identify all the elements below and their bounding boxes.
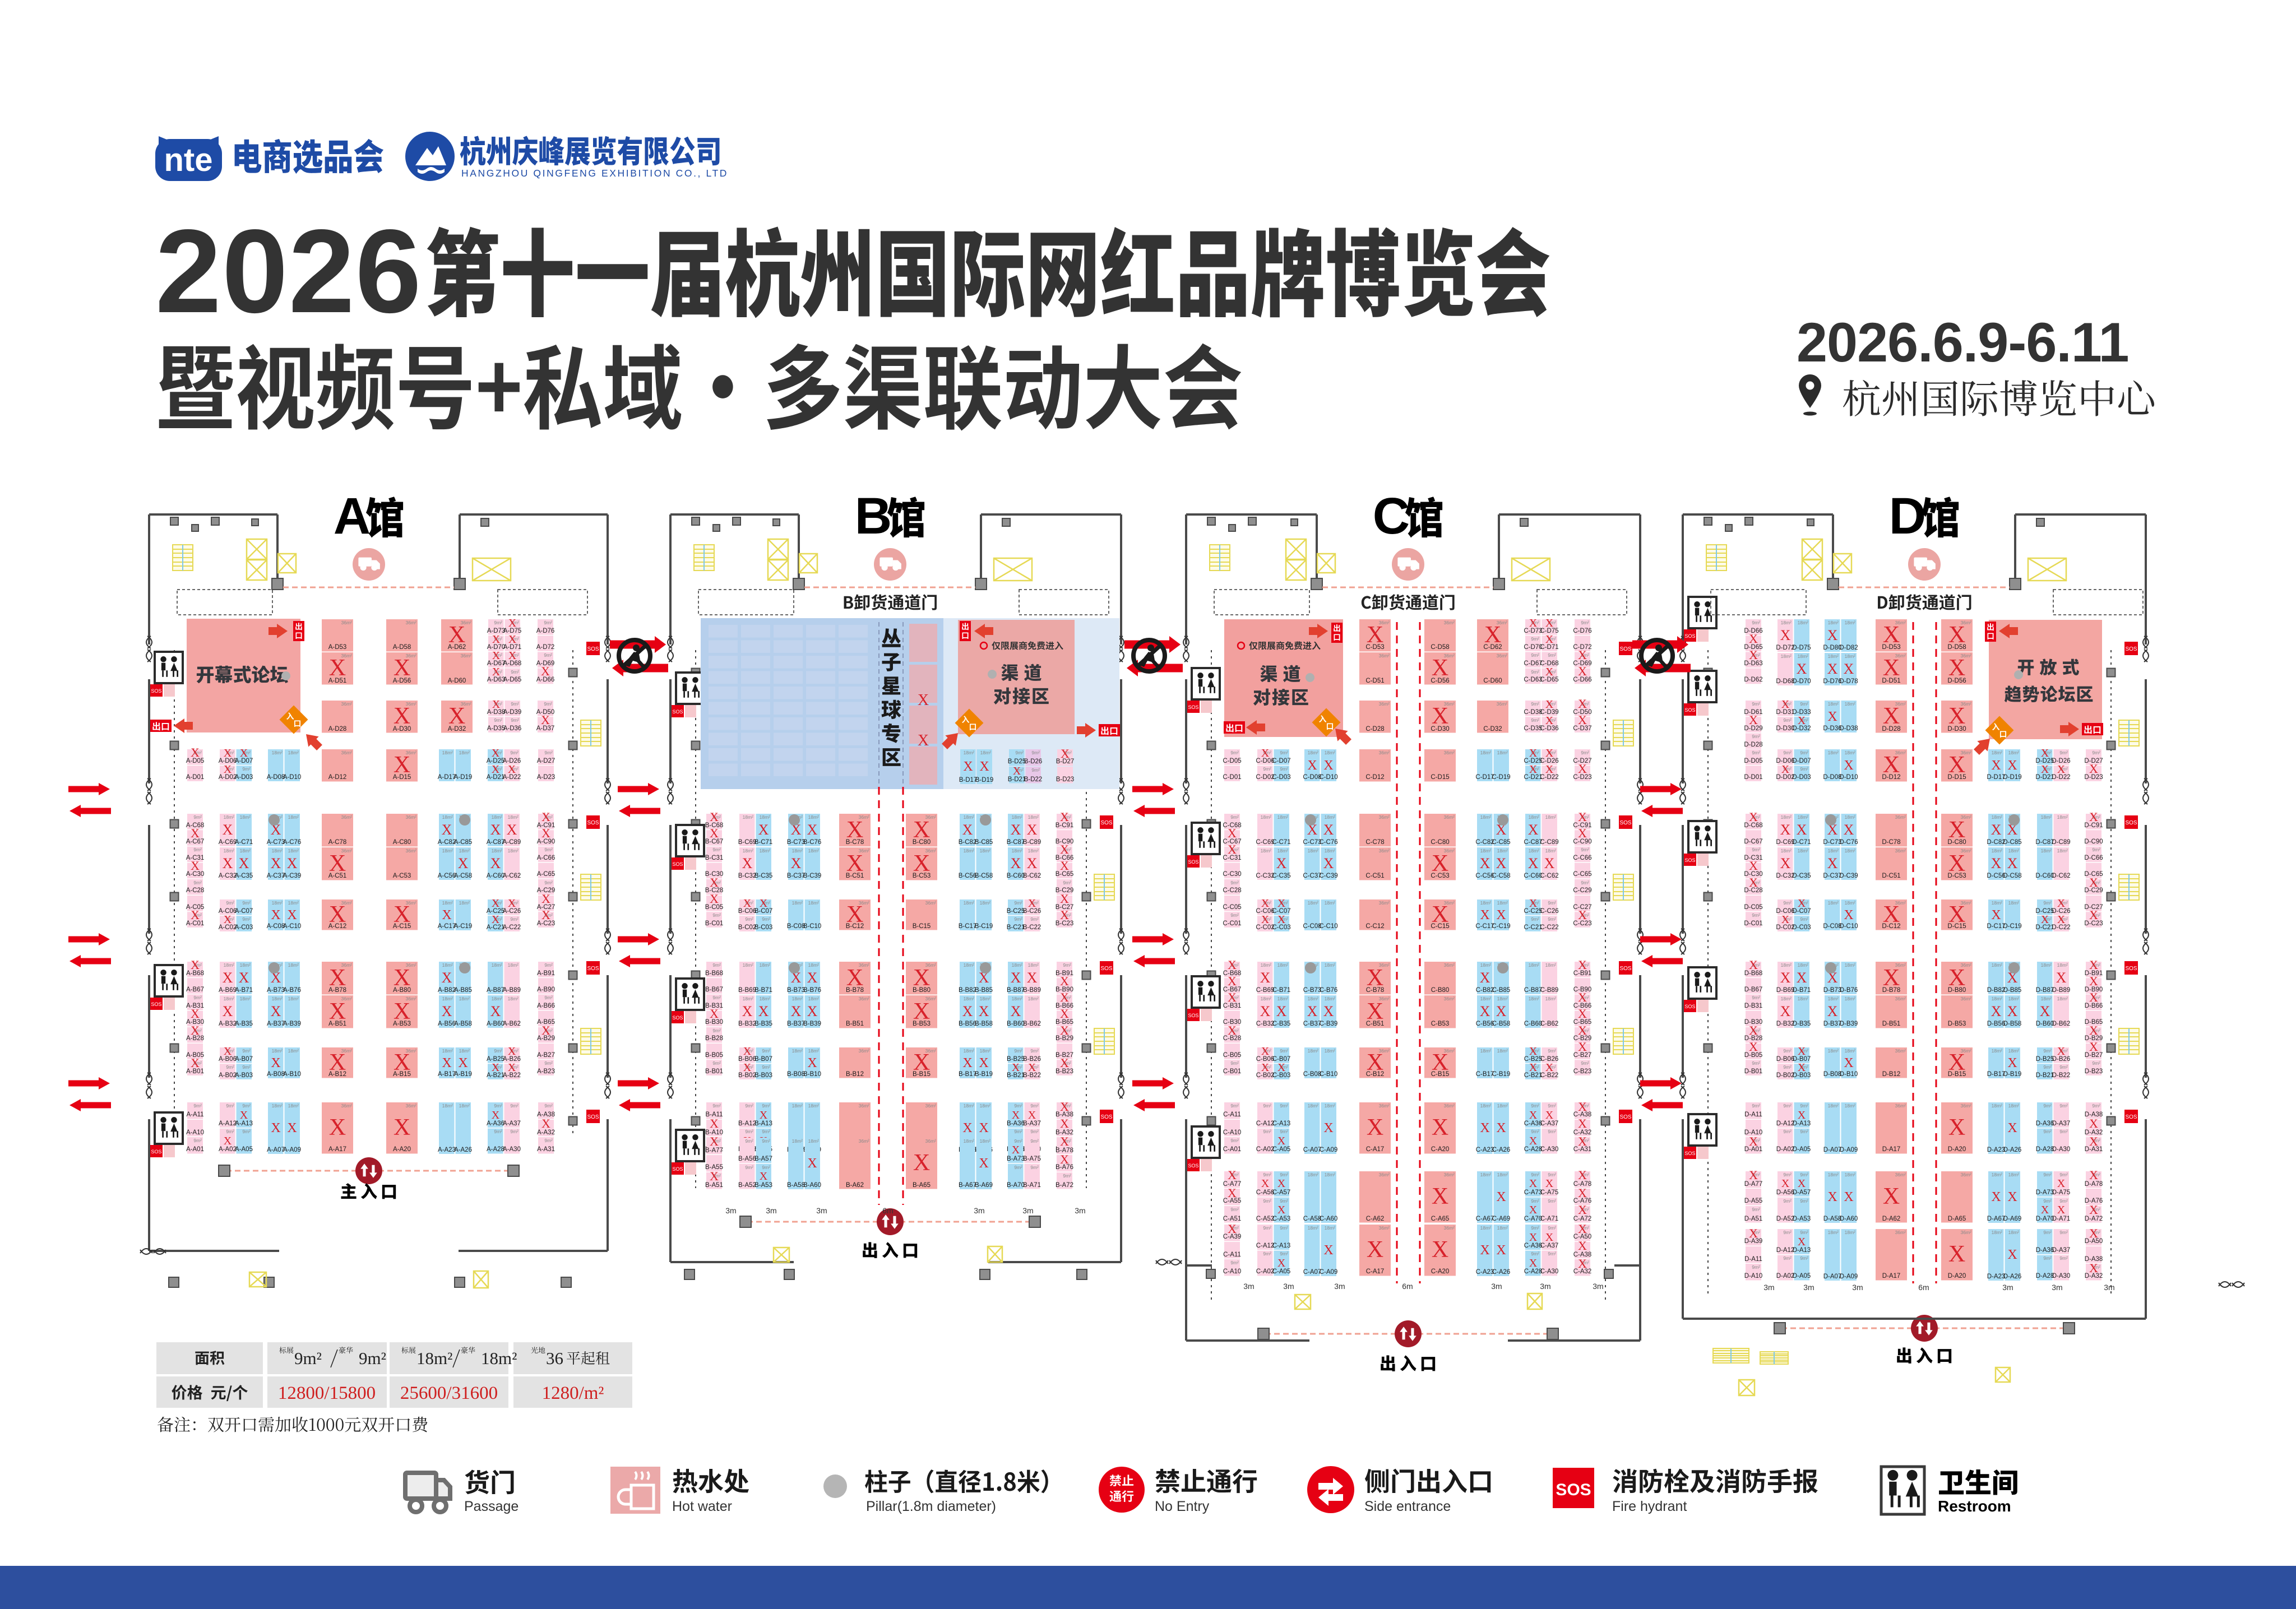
svg-text:X: X [2089,990,2098,1004]
svg-text:A-C82: A-C82 [438,839,456,846]
svg-text:18m²: 18m² [442,750,453,755]
svg-text:A-B82: A-B82 [438,987,456,994]
svg-text:X: X [1228,974,1237,988]
svg-text:C-B58: C-B58 [1492,1021,1511,1027]
svg-text:9m²: 9m² [1581,847,1589,852]
svg-text:9m²: 9m² [762,1138,770,1144]
svg-text:X: X [1228,842,1237,856]
svg-text:18m²: 18m² [1325,1103,1336,1109]
svg-text:X: X [508,650,517,662]
svg-text:18m²: 18m² [1480,1048,1492,1054]
svg-text:18m²: 18m² [980,750,992,755]
svg-text:18m²: 18m² [1781,962,1792,968]
svg-text:9m²: 9m² [1014,916,1022,922]
svg-text:X: X [1883,965,1900,991]
svg-text:12800/15800: 12800/15800 [278,1383,376,1403]
svg-text:36m²: 36m² [925,900,937,906]
svg-text:9m²: 9m² [242,1048,251,1054]
svg-text:X: X [2007,758,2017,773]
svg-text:X: X [508,1045,516,1058]
svg-text:X: X [1545,617,1554,629]
svg-text:36: 36 [546,1348,563,1368]
svg-text:A-B35: A-B35 [235,1021,253,1027]
svg-text:X: X [1545,666,1554,678]
svg-text:D-B37: D-B37 [1823,1021,1842,1027]
svg-text:X: X [710,1116,719,1130]
svg-text:X: X [1480,908,1489,922]
svg-text:9m²: 9m² [1230,1207,1239,1212]
svg-text:9m²: 9m² [226,1103,234,1109]
svg-text:18m²: 18m² [442,962,453,968]
svg-text:9m²: 9m² [1531,636,1539,642]
svg-text:C-A20: C-A20 [1431,1146,1450,1153]
svg-text:9m²: 9m² [1752,847,1760,852]
svg-text:X: X [742,1003,753,1019]
svg-text:18m²: 18m² [288,900,299,906]
svg-text:18m²: 18m² [240,962,251,968]
svg-text:9m²: 9m² [745,916,753,922]
svg-text:X: X [1323,758,1333,773]
svg-text:9m²: 9m² [511,701,519,707]
svg-text:D-A09: D-A09 [1840,1273,1858,1280]
svg-text:B-B37: B-B37 [787,1021,805,1027]
svg-text:X: X [1496,855,1507,871]
svg-text:X: X [807,970,818,986]
svg-text:B-C82: B-C82 [959,839,977,846]
svg-text:36m²: 36m² [859,996,870,1001]
svg-text:C-C28: C-C28 [1223,887,1241,894]
svg-text:36m²: 36m² [859,1048,870,1054]
svg-text:36m²: 36m² [1895,1048,1906,1054]
svg-text:D-A30: D-A30 [2052,1146,2071,1153]
svg-text:C-B10: C-B10 [1320,1071,1338,1078]
svg-text:18m²: 18m² [1845,701,1856,707]
svg-text:B-B56: B-B56 [959,1021,976,1027]
svg-text:X: X [1060,859,1069,873]
svg-text:X: X [1797,822,1807,838]
svg-text:D-A12: D-A12 [1776,1120,1795,1127]
svg-text:C-A13: C-A13 [1272,1242,1291,1249]
svg-text:X: X [979,1156,988,1171]
svg-text:36m²: 36m² [1961,1172,1972,1177]
svg-text:3m: 3m [766,1206,776,1215]
svg-text:36m²: 36m² [461,653,472,659]
svg-text:18m²: 18m² [1992,900,2003,906]
svg-text:X: X [913,851,930,877]
svg-text:SOS: SOS [587,1114,599,1120]
svg-text:B-C62: B-C62 [1023,873,1041,879]
svg-text:D-A73: D-A73 [2036,1189,2054,1196]
svg-text:18m²: 18m² [288,750,299,755]
svg-text:A-B73: A-B73 [267,987,285,994]
svg-text:9m²: 9m² [1548,1172,1556,1177]
svg-text:B-B58: B-B58 [975,1021,993,1027]
svg-text:9m²: 9m² [1752,734,1760,739]
svg-text:D-D70: D-D70 [1792,678,1811,685]
svg-text:A-D08: A-D08 [267,774,285,781]
svg-text:X: X [760,1170,768,1183]
svg-text:X: X [1277,1135,1286,1147]
svg-text:A-D72: A-D72 [536,644,555,651]
svg-text:C-B17: C-B17 [1476,1071,1494,1078]
svg-text:X: X [1367,1050,1383,1075]
svg-text:1280/m²: 1280/m² [542,1383,604,1403]
svg-text:X: X [1277,1204,1286,1216]
svg-text:18m²: 18m² [442,1048,453,1054]
svg-text:18m²: 18m² [288,1048,299,1054]
svg-text:9m²: 9m² [1014,1165,1022,1170]
svg-text:C-D32: C-D32 [1483,726,1502,732]
svg-text:A-C66: A-C66 [537,855,556,861]
svg-text:X: X [1496,908,1506,922]
svg-text:X: X [329,999,346,1024]
svg-text:X: X [2057,763,2066,776]
svg-text:D-C90: D-C90 [2084,838,2103,845]
svg-text:X: X [1578,664,1587,678]
svg-text:C-B82: C-B82 [1476,987,1494,994]
svg-text:X: X [394,752,410,778]
svg-text:B-A71: B-A71 [1023,1182,1041,1189]
svg-text:A-C32: A-C32 [219,873,237,879]
svg-text:B-C76: B-C76 [803,839,822,846]
svg-text:C-B19: C-B19 [1492,1071,1511,1078]
svg-text:X: X [1578,1186,1587,1200]
svg-text:18m²: 18m² [442,900,453,906]
svg-text:X: X [1228,1222,1237,1236]
svg-text:18m²: 18m² [1480,900,1492,906]
svg-text:18m²: 18m² [792,1048,803,1054]
svg-text:9m²: 9m² [2092,1103,2100,1109]
svg-text:D-A57: D-A57 [1793,1189,1811,1196]
svg-text:X: X [1529,1257,1538,1269]
svg-text:3m: 3m [1540,1282,1550,1291]
svg-text:D-B76: D-B76 [1840,987,1858,994]
svg-text:X: X [239,970,249,986]
svg-text:X: X [1323,1243,1333,1258]
svg-text:9m²: 9m² [1531,652,1539,658]
svg-text:9m²: 9m² [1581,880,1589,885]
svg-text:B-A69: B-A69 [975,1182,993,1189]
svg-text:Hot water: Hot water [672,1499,732,1514]
svg-text:9m²: 9m² [2059,1064,2068,1070]
svg-text:X: X [1827,710,1837,724]
svg-text:18m²: 18m² [980,900,991,906]
svg-text:X: X [1529,1204,1538,1216]
svg-text:A-B56: A-B56 [438,1021,456,1027]
svg-text:X: X [1480,1003,1490,1019]
svg-text:A-D60: A-D60 [448,678,466,684]
svg-text:X: X [223,822,233,838]
svg-text:9m²: 9m² [1752,1103,1760,1109]
svg-text:9m²: 9m² [510,916,519,922]
svg-text:D-B22: D-B22 [2052,1072,2071,1079]
svg-text:25600/31600: 25600/31600 [400,1383,498,1403]
svg-text:9m²: 9m² [712,1103,721,1109]
svg-text:X: X [2089,1040,2098,1054]
svg-text:A-B89: A-B89 [503,987,521,994]
svg-text:18m²: 18m² [2041,996,2052,1001]
svg-text:X: X [2089,875,2098,889]
svg-text:X: X [1528,822,1539,838]
svg-text:X: X [1484,622,1501,648]
svg-text:X: X [1578,826,1587,840]
svg-text:9m²: 9m² [1230,880,1239,885]
svg-text:X: X [329,965,346,991]
svg-text:D-A09: D-A09 [1840,1147,1858,1153]
svg-text:X: X [1578,1256,1587,1270]
svg-text:No Entry: No Entry [1155,1499,1210,1514]
svg-text:X: X [1578,1222,1587,1236]
svg-text:9m²: 9m² [1280,1103,1288,1109]
svg-text:18m²: 18m² [1325,962,1336,968]
svg-text:18m²: 18m² [1308,1048,1319,1054]
svg-text:B-B68: B-B68 [705,970,723,977]
svg-text:C-A02: C-A02 [1256,1146,1275,1153]
svg-text:C-B85: C-B85 [1492,987,1511,994]
svg-text:SOS: SOS [587,646,599,652]
svg-text:X: X [271,1121,280,1135]
svg-text:SOS: SOS [1684,1004,1695,1009]
svg-text:X: X [1749,1226,1758,1240]
svg-text:3m: 3m [1763,1283,1774,1292]
svg-text:D-B58: D-B58 [2003,1021,2022,1027]
svg-text:B-B03: B-B03 [754,1072,772,1079]
svg-text:D-A20: D-A20 [1948,1146,1966,1153]
svg-text:X: X [760,1109,768,1121]
svg-text:9m²: 9m² [1015,750,1024,755]
svg-text:C-D15: C-D15 [1431,774,1449,781]
svg-text:A: A [334,488,371,545]
svg-text:D-C35: D-C35 [1792,873,1811,879]
svg-text:18m²: 18m² [442,996,453,1001]
svg-text:X: X [1749,1023,1758,1037]
svg-text:9m²: 9m² [1263,1103,1271,1109]
svg-text:36m²: 36m² [1379,750,1390,755]
svg-text:X: X [913,1150,930,1176]
svg-text:C-A60: C-A60 [1320,1216,1338,1222]
svg-text:X: X [979,1003,989,1019]
svg-text:X: X [223,1003,233,1019]
svg-text:18m²: 18m² [980,848,991,854]
svg-text:A-B19: A-B19 [454,1071,472,1078]
svg-text:36m²: 36m² [1444,996,1455,1001]
svg-text:X: X [1827,855,1838,871]
svg-text:9m²: 9m² [2059,750,2068,755]
svg-text:18m²: 18m² [2008,1172,2020,1177]
svg-text:18m²: 18m² [1529,962,1540,968]
svg-text:36m²: 36m² [925,1103,937,1109]
svg-text:18m²: 18m² [1497,900,1508,906]
svg-text:18m²: 18m² [1497,750,1508,755]
svg-text:X: X [1529,1109,1538,1121]
svg-text:9m²: 9m² [1531,701,1539,707]
svg-text:X: X [224,1135,232,1147]
svg-text:D-B17: D-B17 [1987,1071,2006,1078]
svg-text:X: X [1883,655,1900,681]
svg-text:C-A07: C-A07 [1303,1147,1322,1153]
svg-text:Side entrance: Side entrance [1364,1499,1451,1514]
svg-text:X: X [1578,1007,1587,1021]
svg-text:X: X [1948,965,1965,991]
svg-text:18m²: 18m² [1992,1172,2003,1177]
svg-text:18m²: 18m² [1277,996,1289,1001]
svg-text:18m²: 18m² [808,848,820,854]
svg-text:X: X [1780,627,1791,643]
svg-text:X: X [541,713,550,727]
svg-text:A-B69: A-B69 [219,987,237,994]
svg-text:18m²: 18m² [1325,814,1336,820]
svg-text:18m²: 18m² [1545,962,1557,968]
svg-text:X: X [1496,1190,1506,1204]
svg-text:9m²: 9m² [544,620,552,625]
svg-text:18m²: 18m² [1012,848,1023,854]
svg-text:18m²: 18m² [1781,814,1792,820]
svg-text:9m²: 9m² [1783,1198,1792,1204]
svg-text:B-B05: B-B05 [705,1052,723,1059]
svg-text:D-A23: D-A23 [1987,1147,2006,1153]
svg-text:C-B71: C-B71 [1272,987,1291,994]
svg-text:3m: 3m [2052,1283,2062,1292]
svg-text:18m²: 18m² [1325,848,1336,854]
svg-text:B-A57: B-A57 [754,1156,772,1162]
svg-text:A-B07: A-B07 [235,1056,253,1063]
svg-text:36m²: 36m² [1895,814,1906,820]
svg-text:X: X [492,1061,500,1074]
svg-text:18m²: 18m² [1828,848,1839,854]
svg-text:C-A58: C-A58 [1303,1216,1322,1222]
svg-text:D-D28: D-D28 [1744,741,1762,748]
svg-text:X: X [394,999,410,1024]
svg-text:36m²: 36m² [406,814,417,820]
svg-text:D-B31: D-B31 [1744,1003,1763,1009]
svg-text:3m: 3m [974,1206,984,1215]
svg-text:X: X [1545,1109,1554,1121]
svg-text:X: X [1749,1168,1758,1182]
svg-text:18m²: 18m² [2008,996,2020,1001]
svg-text:36m²: 36m² [1379,814,1390,820]
svg-text:X: X [442,1056,451,1070]
svg-text:9m²: 9m² [2059,1103,2068,1109]
svg-text:18m²: 18m² [2057,848,2068,854]
svg-text:9m²: 9m² [745,1103,753,1109]
svg-text:B-C89: B-C89 [1023,839,1041,846]
svg-text:9m²: 9m² [1014,1138,1022,1144]
svg-text:C-A26: C-A26 [1492,1147,1511,1153]
svg-text:X: X [2041,747,2049,759]
svg-text:18m²: 18m² [1992,848,2003,854]
svg-text:X: X [1432,655,1448,681]
svg-text:9m²: 9m² [1752,701,1760,707]
svg-text:X: X [1228,958,1237,972]
svg-text:A-C19: A-C19 [454,923,473,930]
svg-text:9m²: 9m² [494,1103,502,1109]
svg-text:D-C10: D-C10 [1839,923,1858,930]
svg-text:9m²: 9m² [1581,1060,1589,1066]
svg-text:A-B60: A-B60 [487,1021,504,1027]
svg-text:9m²: 9m² [226,1064,234,1070]
svg-text:D-A60: D-A60 [1840,1216,1858,1222]
svg-text:X: X [1749,859,1758,873]
svg-text:18m²: 18m² [964,1103,975,1109]
svg-text:9m²: 9m² [1230,1103,1239,1109]
svg-text:18m²: 18m² [508,848,519,854]
svg-text:C-B62: C-B62 [1540,1021,1559,1027]
svg-text:A-C28: A-C28 [186,887,205,894]
svg-text:9m²: 9m² [544,847,553,852]
svg-text:X: X [1367,999,1383,1024]
svg-text:C-C76: C-C76 [1319,839,1337,846]
svg-text:36m²: 36m² [1444,814,1455,820]
svg-text:X: X [458,1056,467,1070]
svg-text:9m²: 9m² [762,1064,770,1070]
svg-text:18m²: 18m² [272,900,283,906]
svg-text:X: X [962,1003,973,1019]
svg-text:A-D23: A-D23 [537,774,556,781]
svg-text:X: X [1529,763,1538,776]
svg-text:D-A02: D-A02 [1776,1273,1795,1279]
svg-text:D-B67: D-B67 [1744,986,1763,993]
svg-text:B-A73: B-A73 [1007,1156,1025,1162]
svg-text:X: X [962,1121,972,1135]
svg-text:9m²: 9m² [1548,1251,1556,1256]
svg-text:3m: 3m [1075,1206,1085,1215]
svg-text:A-B90: A-B90 [537,986,555,993]
svg-text:18m²: 18m² [1261,814,1272,820]
svg-text:B-A62: B-A62 [846,1182,864,1189]
svg-text:B-B73: B-B73 [787,987,805,994]
svg-text:SOS: SOS [1619,966,1631,972]
svg-text:9m²: 9m² [2043,1103,2052,1109]
svg-text:6m: 6m [1918,1283,1929,1292]
svg-text:D-C66: D-C66 [2084,855,2103,861]
svg-text:X: X [962,1056,972,1070]
svg-text:X: X [1883,622,1900,648]
svg-text:9m²: 9m² [1531,1198,1539,1204]
svg-text:9m²: 9m² [242,900,251,906]
svg-text:C-B39: C-B39 [1320,1021,1338,1027]
svg-text:B-C71: B-C71 [754,839,773,846]
svg-text:B-C17: B-C17 [959,923,977,930]
svg-text:D-C58: D-C58 [2003,873,2021,879]
svg-text:X: X [394,703,410,729]
svg-text:9m²: 9m² [1752,995,1760,1000]
svg-text:X: X [458,855,469,871]
svg-text:9m²: 9m² [1783,1230,1792,1235]
svg-text:18m²: 18m² [808,900,820,906]
svg-text:C-A17: C-A17 [1366,1268,1385,1275]
svg-text:D-B89: D-B89 [2052,987,2071,994]
svg-text:A-C60: A-C60 [487,873,505,879]
svg-text:18m²: 18m² [1480,848,1492,854]
svg-text:X: X [1367,1237,1383,1263]
svg-text:X: X [1228,1168,1237,1182]
svg-text:18m²: 18m² [1845,900,1856,906]
svg-text:9m²: 9m² [1263,1129,1271,1134]
svg-text:A-D03: A-D03 [235,774,253,781]
svg-text:X: X [442,970,452,986]
svg-text:D-C01: D-C01 [1744,920,1762,927]
svg-text:D-C19: D-C19 [2003,923,2021,930]
svg-text:X: X [1060,892,1069,906]
svg-text:9m²: 9m² [1263,1172,1271,1177]
svg-text:X: X [2007,1190,2017,1204]
svg-text:X: X [1323,1003,1334,1019]
svg-text:C-C26: C-C26 [1540,908,1558,915]
svg-text:36m²: 36m² [341,1103,353,1109]
svg-text:X: X [1432,1050,1448,1075]
svg-text:36m²: 36m² [859,1138,870,1144]
svg-text:9m²: 9m² [2059,1230,2068,1235]
